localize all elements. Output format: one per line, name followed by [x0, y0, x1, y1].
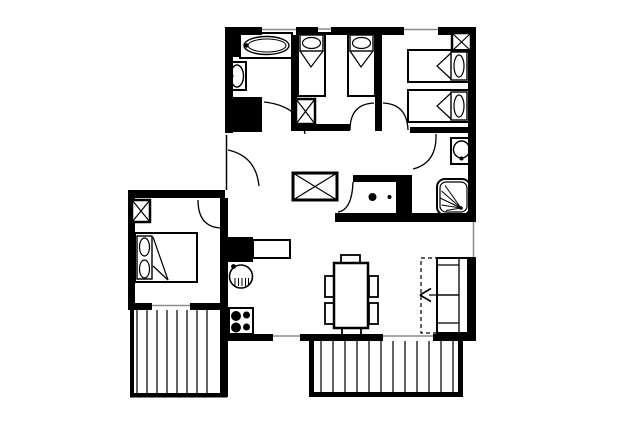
stove-burner-1: [231, 311, 241, 321]
balcony-bottom-edge-west: [309, 341, 314, 397]
floorplan: [0, 0, 640, 427]
balcony-bottom-edge-east: [458, 341, 463, 397]
window-bottom-living-gap: [383, 334, 433, 341]
bathtub-black-box: [229, 33, 240, 57]
balcony-bottom-edge-south: [309, 392, 463, 397]
stove-burner-4: [243, 324, 250, 331]
window-top-bedroom2-gap: [404, 27, 438, 35]
wall-bedroom-divider: [375, 27, 382, 131]
wall-kitchen-block: [227, 237, 253, 262]
wall-kitchen-west: [220, 198, 228, 397]
balcony-left-edge-west: [130, 310, 134, 397]
wall-wc-block: [396, 175, 412, 213]
background: [0, 0, 640, 427]
toilet-bowl-dot: [369, 193, 377, 201]
stove-burner-3: [231, 323, 241, 333]
wall-bedroom2-south: [410, 127, 476, 133]
shower-drain: [459, 206, 463, 210]
kitchen-sink-tap: [231, 264, 236, 269]
wall-bathroom-block: [229, 97, 262, 132]
wall-leftroom-north: [128, 190, 225, 198]
washbasin-shower-tap: [460, 157, 464, 161]
window-bottom-kitchen-gap: [273, 334, 300, 341]
window-leftroom-south-gap: [152, 303, 190, 310]
stove-burner-2: [243, 312, 250, 319]
bathtub-faucet: [244, 43, 248, 47]
washbasin-bath-tap: [230, 74, 234, 78]
wall-bottom: [220, 334, 476, 341]
window-right-living-gap: [468, 222, 476, 257]
floorplan-svg: [0, 0, 640, 427]
balcony-left-edge-south: [130, 393, 227, 398]
wall-wc-north: [353, 175, 397, 182]
toilet-tank-dot: [388, 195, 392, 199]
